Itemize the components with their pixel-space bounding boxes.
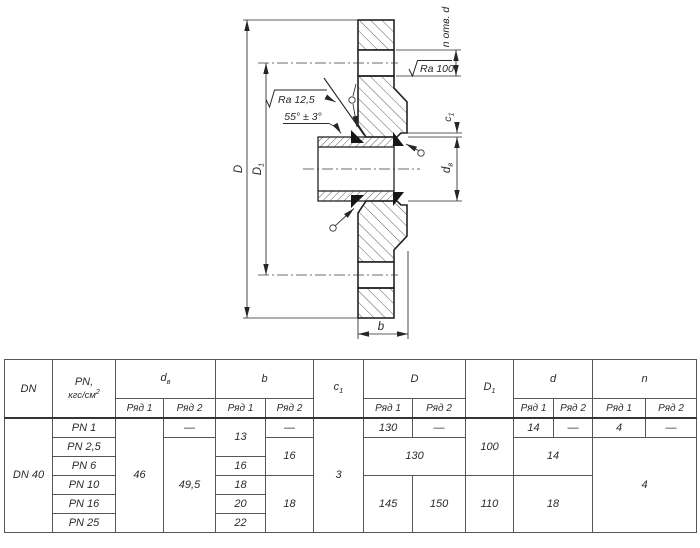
cell-D1-pn1-6: 100 (466, 418, 514, 475)
cell-d-pn2-6: 14 (514, 437, 593, 475)
header-b: b (216, 360, 314, 399)
cell-b-r2-pn10-25: 18 (266, 475, 314, 532)
cell-dn-40: DN 40 (5, 418, 53, 532)
weld-contour-symbol-top (349, 97, 355, 103)
cell-b-r1-pn6: 16 (216, 456, 266, 475)
cell-b-r1-pn1: 13 (216, 418, 266, 456)
cell-pn-2-5: PN 2,5 (53, 437, 116, 456)
label-dim-D: D (233, 165, 245, 173)
cell-dv-r1: 46 (116, 418, 164, 532)
cell-pn-6: PN 6 (53, 456, 116, 475)
cell-D-pn2-6: 130 (364, 437, 466, 475)
header-n-ryad1: Ряд 1 (593, 399, 646, 419)
header-d: d (514, 360, 593, 399)
cell-D-r2-pn10-25: 150 (413, 475, 466, 532)
cell-D-r2-pn1: — (413, 418, 466, 437)
label-dim-D1: D1 (252, 163, 266, 175)
angle-callout: 55° ± 3° (283, 111, 341, 134)
cell-pn-16: PN 16 (53, 494, 116, 513)
leader-top (353, 104, 357, 127)
header-d-ryad1: Ряд 1 (514, 399, 554, 419)
label-ra-12-5: Ra 12,5 (278, 94, 315, 106)
label-n-holes: n отв. d (440, 6, 452, 48)
cell-b-r1-pn10: 18 (216, 475, 266, 494)
label-dim-dv: dв (441, 163, 455, 173)
cell-n-r2-pn1: — (646, 418, 697, 437)
label-dim-c1: c1 (442, 112, 456, 121)
label-dim-b: b (378, 321, 385, 333)
header-b-ryad1: Ряд 1 (216, 399, 266, 419)
cell-n-pn2-25: 4 (593, 437, 697, 532)
header-pn: PN, кгс/см2 (53, 360, 116, 419)
flange-dimensions-table: DN PN, кгс/см2 dв b c1 D D1 d n Ряд 1 Ря… (4, 359, 697, 533)
cell-n-r1-pn1: 4 (593, 418, 646, 437)
angle-arc (329, 124, 341, 134)
cell-d-r1-pn1: 14 (514, 418, 554, 437)
header-dv-ryad1: Ряд 1 (116, 399, 164, 419)
leader-top-tail (353, 84, 356, 96)
table-row: DN 40 PN 1 46 — 13 — 3 130 — 100 14 — 4 … (5, 418, 697, 437)
label-bevel-angle: 55° ± 3° (284, 111, 322, 123)
header-dv-ryad2: Ряд 2 (164, 399, 216, 419)
header-n: n (593, 360, 697, 399)
leader-bottom (335, 209, 354, 226)
cell-b-r1-pn16: 20 (216, 494, 266, 513)
weld-contour-symbol-right (418, 150, 424, 156)
weld-contour-symbol-bottom (330, 225, 336, 231)
flange-technical-drawing: Ra 100 Ra 12,5 55° ± 3° n отв. d D D1 c1… (0, 0, 700, 359)
cell-dv-r2-pn1: — (164, 418, 216, 437)
flange-upper-hub (358, 76, 407, 137)
flange-top-ring (358, 20, 394, 50)
header-dv: dв (116, 360, 216, 399)
cell-dv-r2: 49,5 (164, 437, 216, 532)
cell-pn-10: PN 10 (53, 475, 116, 494)
cell-D-r1-pn1: 130 (364, 418, 413, 437)
header-n-ryad2: Ряд 2 (646, 399, 697, 419)
header-D-ryad2: Ряд 2 (413, 399, 466, 419)
cell-pn-25: PN 25 (53, 513, 116, 532)
header-D: D (364, 360, 466, 399)
header-D1: D1 (466, 360, 514, 419)
roughness-bevel-leader (326, 97, 336, 102)
cell-D-r1-pn10-25: 145 (364, 475, 413, 532)
header-D-ryad1: Ряд 1 (364, 399, 413, 419)
cell-b-r2-pn2-6: 16 (266, 437, 314, 475)
label-ra-100: Ra 100 (420, 63, 454, 75)
header-b-ryad2: Ряд 2 (266, 399, 314, 419)
header-pn-unit: кгс/см2 (68, 390, 100, 401)
cell-d-r2-pn1: — (554, 418, 593, 437)
cell-b-r1-pn25: 22 (216, 513, 266, 532)
flange-lower-hub (358, 201, 407, 262)
cell-c1: 3 (314, 418, 364, 532)
cell-D1-pn10-25: 110 (466, 475, 514, 532)
header-d-ryad2: Ряд 2 (554, 399, 593, 419)
cell-pn-1: PN 1 (53, 418, 116, 437)
header-pn-title: PN, (75, 376, 93, 388)
header-dn: DN (5, 360, 53, 419)
header-c1: c1 (314, 360, 364, 419)
cell-b-r2-pn1: — (266, 418, 314, 437)
cell-d-pn10-25: 18 (514, 475, 593, 532)
flange-bottom-ring (358, 288, 394, 318)
leader-right (406, 144, 419, 151)
